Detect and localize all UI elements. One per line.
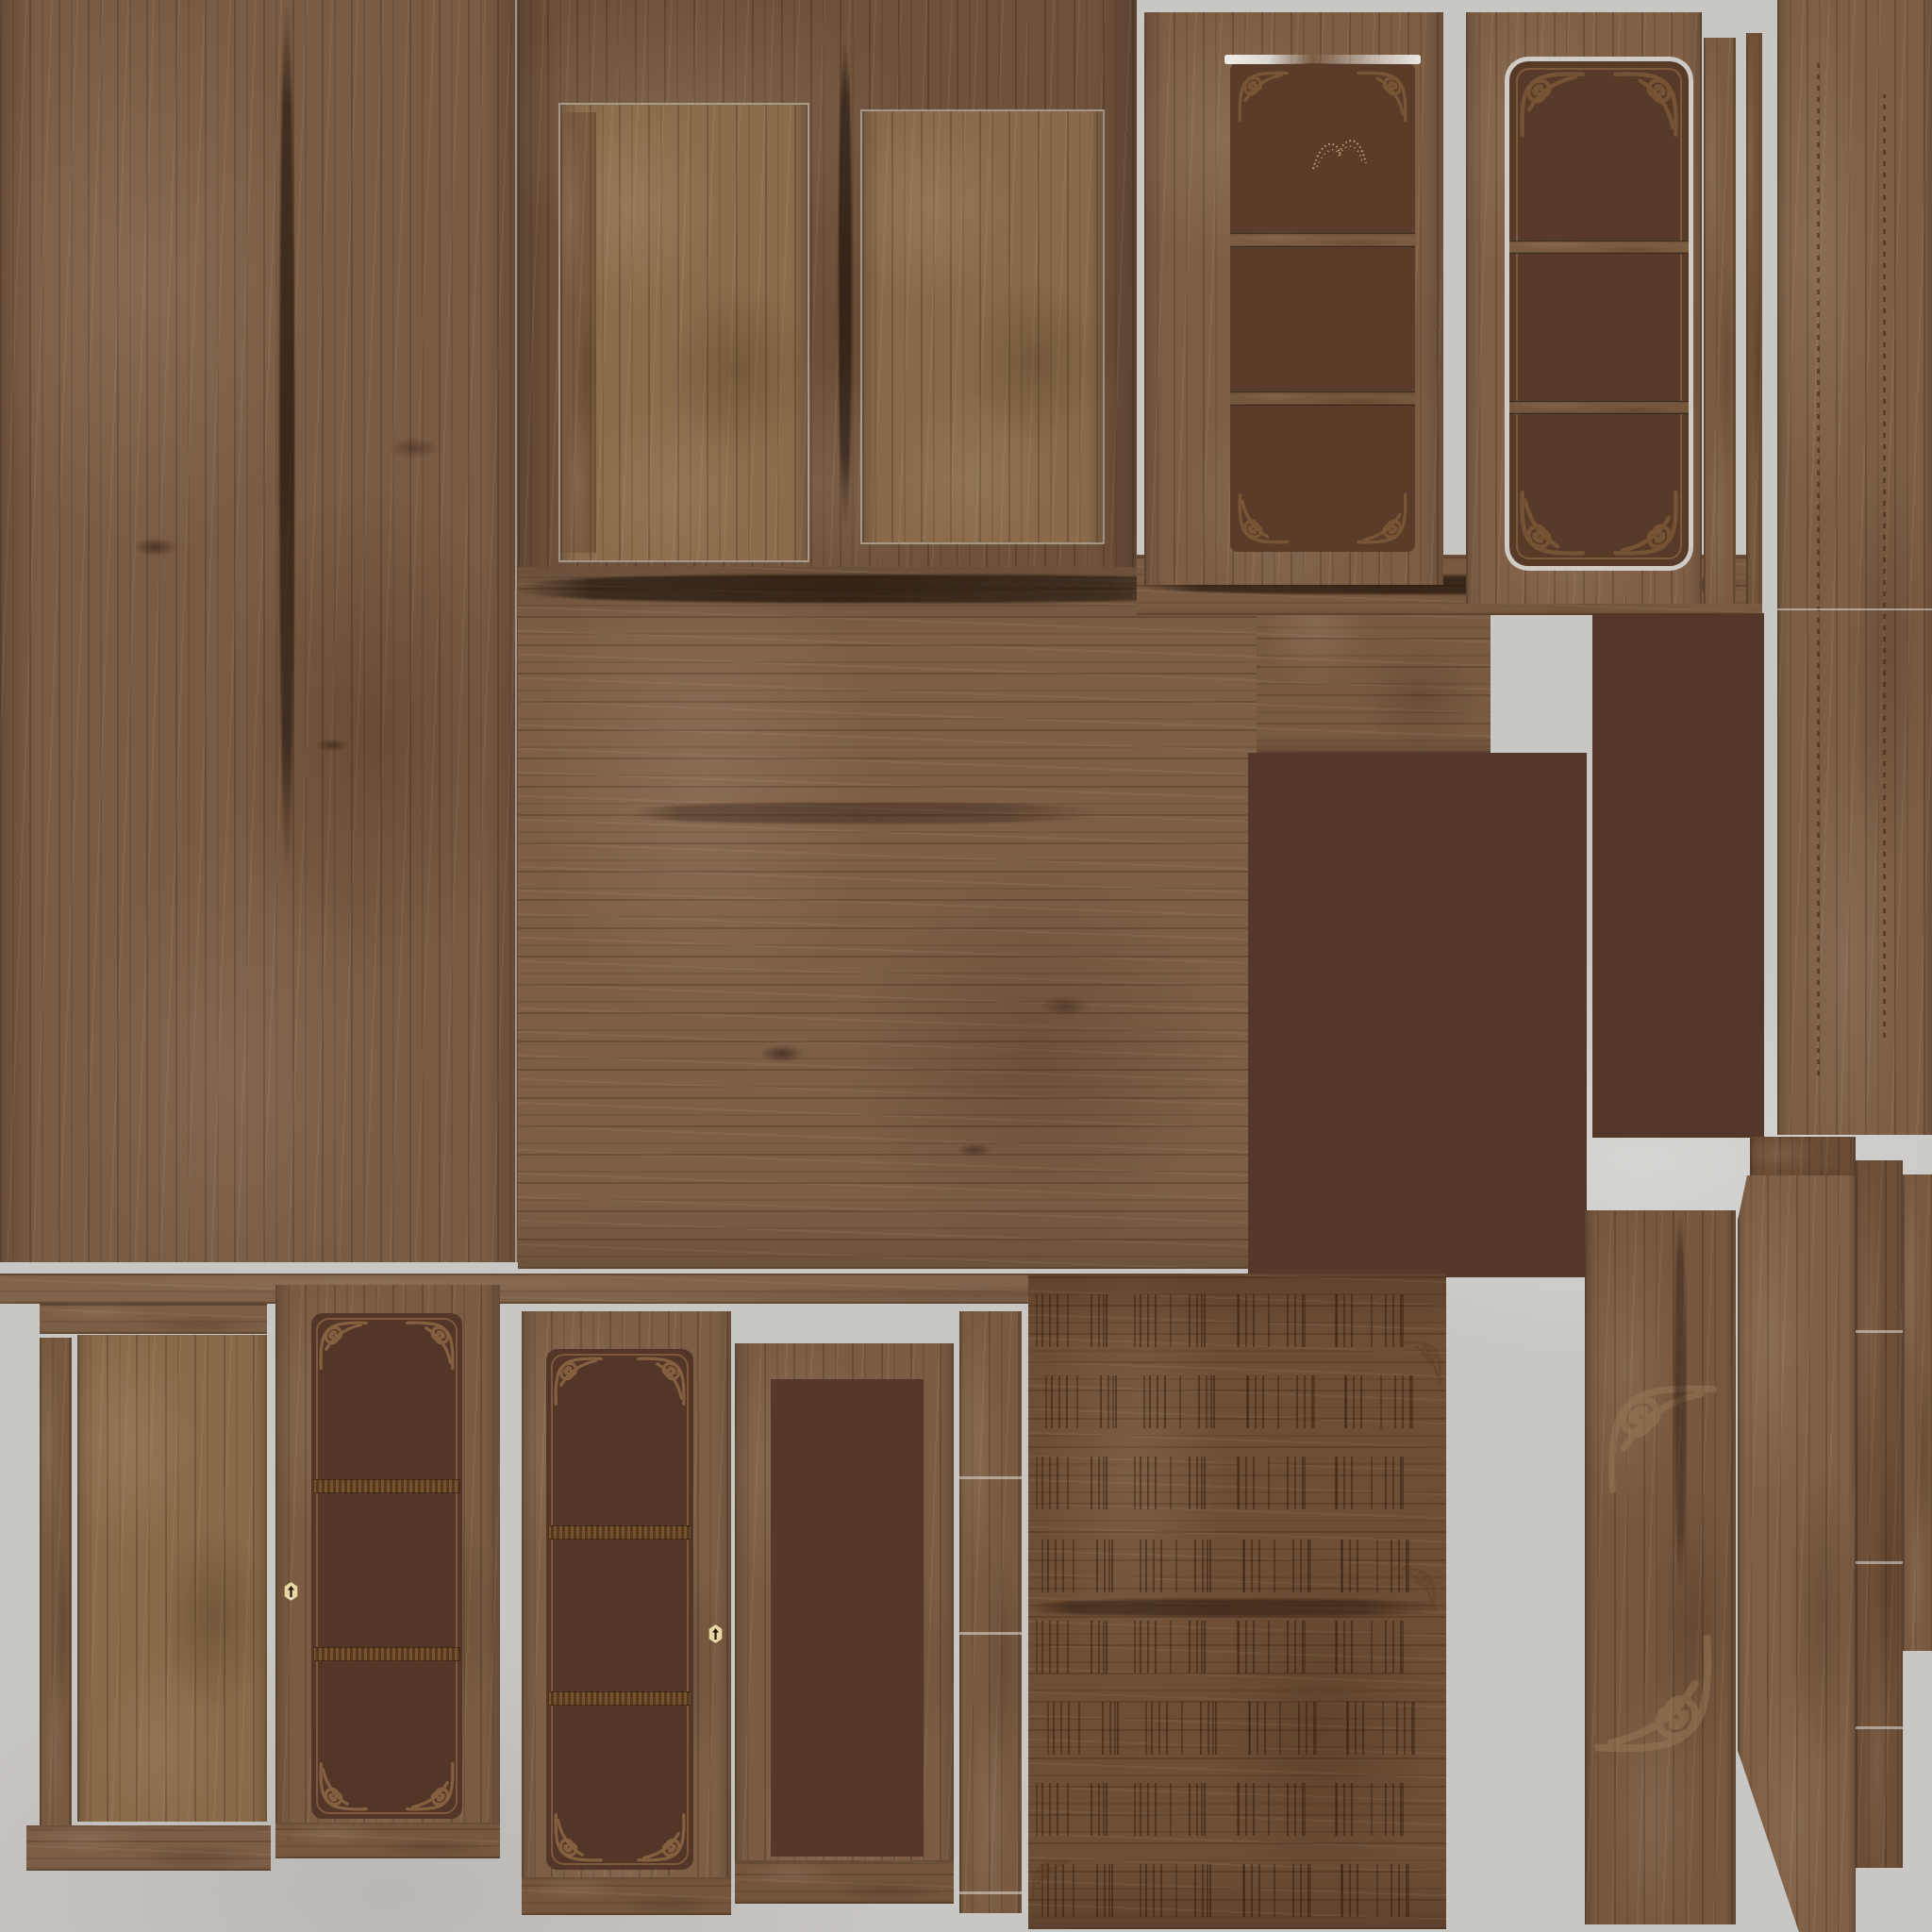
seam-3 <box>959 1891 1022 1894</box>
tally-row-6 <box>1047 1702 1424 1755</box>
flourish-edge-right-2 <box>1384 1565 1446 1610</box>
panel-edge-strip <box>560 112 596 553</box>
seam-right <box>515 0 517 1262</box>
seam-3 <box>1856 1726 1903 1729</box>
flourish-corner-bl <box>1236 493 1289 546</box>
door-frame-open <box>26 1304 271 1871</box>
cabinet-glass-door-right <box>1466 12 1702 604</box>
door-plain <box>735 1343 954 1904</box>
bookshelf-tally-panel <box>1028 1274 1446 1929</box>
panel-border-line <box>1516 68 1682 559</box>
knots-overlay <box>0 283 518 943</box>
bottom-rail <box>735 1860 954 1904</box>
tally-row-4 <box>1041 1540 1430 1592</box>
nail-line-right <box>1883 94 1886 1038</box>
panel-border-line <box>551 1354 689 1865</box>
rope-divider-lower <box>548 1691 691 1706</box>
flourish-corner-tl <box>552 1355 603 1406</box>
crack-line <box>1674 1210 1686 1588</box>
bottom-rail <box>275 1823 500 1858</box>
tally-row-7 <box>1036 1783 1426 1836</box>
flourish-corner-br <box>406 1762 457 1813</box>
rope-divider-lower <box>313 1647 460 1661</box>
seam-2 <box>959 1632 1022 1635</box>
mullion-lower <box>1509 401 1689 414</box>
panel-border-line <box>316 1318 458 1814</box>
tally-row-1 <box>1036 1294 1430 1347</box>
door-right-edge-plank <box>1704 38 1736 604</box>
bottom-sill <box>26 1825 271 1871</box>
moth-decal <box>1309 131 1370 173</box>
inset-panel-right <box>862 111 1103 542</box>
flourish-corner-br <box>1613 491 1681 558</box>
knots-overlay <box>612 925 1178 1246</box>
keyhole-slot <box>288 1586 294 1597</box>
right-edge-sliver <box>1746 33 1762 604</box>
keyhole-slot <box>712 1628 719 1640</box>
wall-plank-central <box>518 567 1257 1269</box>
flat-panel-center <box>1248 753 1587 1277</box>
mullion-lower <box>1230 391 1415 406</box>
mullion-upper <box>1230 233 1415 247</box>
rope-divider-upper <box>313 1479 460 1493</box>
plain-panel <box>771 1379 924 1857</box>
door-ornate-middle <box>522 1311 731 1915</box>
panel-top-highlight <box>1224 55 1421 64</box>
flourish-corner-tr <box>1613 69 1681 137</box>
strip-far-right <box>1777 0 1932 1135</box>
seam-1 <box>1856 1330 1903 1333</box>
door-ornate-left <box>275 1285 500 1858</box>
tally-row-8 <box>1041 1864 1424 1917</box>
flourish-corner-tr <box>637 1355 688 1406</box>
flourish-corner-br <box>637 1813 688 1864</box>
flourish-corner-tl <box>1236 69 1289 122</box>
top-rail <box>40 1304 267 1334</box>
bottom-rail <box>522 1877 731 1915</box>
flourish-corner-tl <box>317 1319 368 1370</box>
tally-row-5 <box>1036 1621 1430 1674</box>
carving-flourish-2 <box>1594 1616 1717 1776</box>
flourish-corner-tr <box>1357 69 1409 122</box>
texture-atlas <box>0 0 1932 1932</box>
keyhole <box>284 1582 298 1601</box>
seam-1 <box>959 1476 1022 1479</box>
seam-2 <box>1856 1561 1903 1564</box>
ornate-panel <box>311 1313 462 1819</box>
ornate-panel <box>546 1349 693 1870</box>
strip-right-lower-a <box>1856 1160 1903 1868</box>
plank-carved <box>1585 1210 1736 1924</box>
strip-narrow <box>959 1311 1022 1913</box>
seam-middle <box>1777 608 1932 610</box>
flourish-corner-tr <box>406 1319 457 1370</box>
flourish-corner-bl <box>552 1813 603 1864</box>
glass-panel <box>1509 61 1689 566</box>
plank-skewed <box>1738 1175 1856 1932</box>
cabinet-glass-door-left <box>1144 12 1443 585</box>
flourish-corner-bl <box>1517 491 1585 558</box>
flourish-edge-left <box>1030 1851 1072 1907</box>
nail-line-left <box>1817 57 1820 1075</box>
flourish-corner-br <box>1357 493 1409 546</box>
left-stile <box>40 1338 72 1825</box>
mullion-upper <box>1509 241 1689 254</box>
wall-plank-left <box>0 0 518 1262</box>
flat-panel-right <box>1592 613 1764 1138</box>
glass-panel <box>1230 63 1415 552</box>
flourish-edge-right-1 <box>1390 1339 1452 1384</box>
crack-line-2 <box>631 803 1103 824</box>
flourish-corner-tl <box>1517 69 1585 137</box>
keyhole <box>708 1624 723 1643</box>
strip-right-lower-b <box>1903 1174 1932 1651</box>
tally-row-2 <box>1045 1375 1430 1428</box>
flourish-corner-bl <box>317 1762 368 1813</box>
carving-flourish-1 <box>1604 1361 1717 1512</box>
plank-panel <box>77 1335 267 1822</box>
rope-divider-upper <box>548 1525 691 1540</box>
inset-panel-left <box>560 105 808 560</box>
tally-row-3 <box>1036 1457 1413 1509</box>
